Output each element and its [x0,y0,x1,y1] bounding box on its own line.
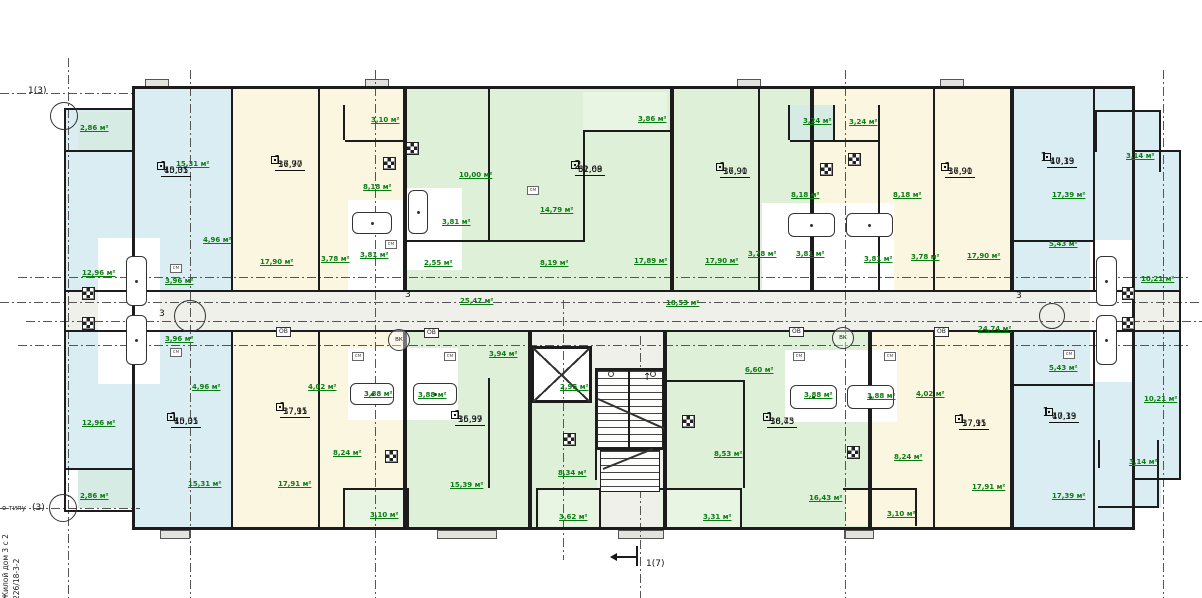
wall-segment [66,290,132,292]
plumbing-riser-tag: ВК [832,327,854,349]
axis-label: 3 [1016,291,1022,301]
stove-icon [682,415,695,428]
wall-segment [663,330,667,530]
room-area-label: 3,10 м² [887,510,916,518]
heating-riser-tag: ОВ [276,327,291,337]
room-area-label: 8,19 м² [540,259,569,267]
axis-circle [174,300,206,332]
title-block-line2: 226/18-3-2 [12,468,21,598]
room-zone [160,530,190,539]
wall-segment [1010,330,1014,530]
heating-riser-tag: ОВ [789,327,804,337]
wall-segment [658,488,742,490]
bathtub-icon [352,212,392,234]
bathtub-icon [126,315,147,365]
room-area-label: 18,53 м² [666,299,699,307]
wall-segment [1179,150,1181,480]
axis-line [18,277,1190,278]
apartment-areas: 17,3940,13 [1046,156,1048,158]
plumbing-riser-tag: ВК [388,329,410,351]
room-area-label: 2,55 м² [424,259,453,267]
total-area: 61,09 [575,165,605,175]
room-area-label: 8,18 м² [363,183,392,191]
room-area-label: 15,39 м² [450,481,483,489]
wall-segment [132,86,1135,89]
apartment-areas: 17,9137,15 [279,406,281,408]
wall-segment [868,330,872,530]
room-area-label: 4,02 м² [308,383,337,391]
room-area-label: 3,81 м² [796,250,825,258]
stove-icon [848,153,861,166]
room-zone [1095,110,1161,172]
wall-segment [599,488,601,528]
room-area-label: 3,88 м² [364,390,393,398]
room-area-label: 8,18 м² [893,191,922,199]
room-area-label: 3,81 м² [864,255,893,263]
washer-tag: см [352,352,364,361]
stove-icon [847,446,860,459]
total-area: 40,13 [1049,412,1079,422]
wall-segment [583,130,585,242]
room-zone [660,490,740,528]
room-area-label: 3,14 м² [1126,152,1155,160]
room-area-label: 24,74 м² [978,325,1011,333]
room-area-label: 4,96 м² [203,236,232,244]
room-area-label: 2,86 м² [80,492,109,500]
wall-segment [345,488,409,490]
wall-segment [403,86,407,290]
apartment-areas: 17,9036,91 [944,166,946,168]
room-area-label: 3,10 м² [370,511,399,519]
stove-icon [385,450,398,463]
total-area: 36,77 [275,160,305,170]
wall-segment [743,382,745,488]
wall-segment [231,332,233,530]
heating-riser-tag: ОВ [934,327,949,337]
stove-icon [82,287,95,300]
wall-segment [933,332,935,530]
total-area: 38,75 [767,417,797,427]
stove-icon [82,317,95,330]
washer-tag: см [385,240,397,249]
apartment-areas: 17,9036,77 [274,159,276,161]
room-zone [844,530,874,539]
bathtub-icon [1096,315,1117,365]
title-block-line1: Жилой дом 3 с 2 [1,468,10,598]
room-area-label: 3,94 м² [489,350,518,358]
wall-segment [1010,86,1014,290]
room-zone [1135,292,1181,332]
bathtub-icon [126,256,147,306]
apartment-areas: 17,9137,15 [958,418,960,420]
washer-tag: см [170,348,182,357]
room-zone [78,470,132,508]
room-area-label: 17,91 м² [278,480,311,488]
room-area-label: 2,95 м² [560,383,589,391]
room-area-label: 8,24 м² [333,449,362,457]
room-area-label: 6,60 м² [745,366,774,374]
wall-segment [915,488,917,526]
wall-segment [66,330,132,332]
axis-circle [50,102,78,130]
wall-segment [318,88,320,290]
wall-segment [488,378,490,488]
wall-segment [66,468,132,470]
wall-segment [1135,330,1181,332]
wall-segment [758,88,760,290]
wall-segment [132,86,135,530]
wall-segment [833,105,835,140]
wall-segment [843,488,917,490]
room-area-label: 8,34 м² [558,469,587,477]
room-area-label: 16,43 м² [809,494,842,502]
stair-post-icon [608,371,614,377]
wall-segment [1093,332,1095,530]
axis-circle [49,494,77,522]
room-area-label: 17,90 м² [705,257,738,265]
wall-segment [665,380,745,382]
total-area: 37,15 [959,419,989,429]
total-area: 40,05 [171,417,201,427]
room-area-label: 17,39 м² [1052,191,1085,199]
elevator-shaft-icon [533,348,590,402]
room-zone [583,92,667,130]
apartment-areas: 17,9036,91 [719,166,721,168]
room-zone [508,60,666,86]
washer-tag: см [884,352,896,361]
axis-label: 1(3) [28,86,46,96]
room-zone [618,530,664,539]
total-area: 36,91 [945,167,975,177]
room-area-label: 3,88 м² [867,392,896,400]
room-area-label: 8,24 м² [894,453,923,461]
wall-segment [1012,384,1095,386]
bathtub-icon [846,213,893,237]
room-area-label: 3,14 м² [1129,458,1158,466]
axis-label: 1(7) [646,559,664,569]
washer-tag: см [170,264,182,273]
stairs-divider [628,370,630,448]
room-area-label: 17,39 м² [1052,492,1085,500]
stove-icon [820,163,833,176]
wall-segment [343,105,345,140]
total-area: 36,37 [455,415,485,425]
room-area-label: 5,43 м² [1049,240,1078,248]
room-area-label: 17,89 м² [634,257,667,265]
room-area-label: 14,79 м² [540,206,573,214]
wall-segment [407,488,409,528]
wall-segment [790,140,880,142]
room-area-label: 3,78 м² [911,253,940,261]
wall-segment [405,240,585,242]
heating-riser-tag: ОВ [424,328,439,338]
room-area-label: 8,18 м² [791,191,820,199]
wall-segment [1095,110,1097,152]
wall-segment [64,108,66,512]
room-area-label: 3,96 м² [165,335,194,343]
room-area-label: 3,24 м² [803,117,832,125]
wall-segment [318,332,320,530]
room-area-label: 12,96 м² [82,269,115,277]
room-area-label: 3,81 м² [360,251,389,259]
stove-icon [1122,317,1135,330]
wall-segment [1098,506,1159,508]
wall-segment [636,546,638,566]
room-zone [437,530,497,539]
total-area: 37,15 [280,407,310,417]
wall-segment [231,88,233,290]
apartment-areas: 32,6861,09 [574,164,576,166]
apartment-areas: 15,9936,37 [454,414,456,416]
room-area-label: 10,21 м² [1144,395,1177,403]
room-area-label: 5,43 м² [1049,364,1078,372]
bathtub-icon [408,190,428,234]
room-area-label: 4,96 м² [192,383,221,391]
room-area-label: 3,62 м² [559,513,588,521]
room-area-label: 3,88 м² [804,391,833,399]
washer-tag: см [1063,350,1075,359]
apartment-areas: 15,3140,05 [170,416,172,418]
wall-segment [670,86,674,290]
total-area: 36,91 [720,167,750,177]
room-area-label: 10,00 м² [459,171,492,179]
wall-segment [612,556,638,558]
stairs-up-arrow-icon: ↑ [643,372,651,383]
wall-segment [583,130,672,132]
room-area-label: 17,91 м² [972,483,1005,491]
room-area-label: 17,90 м² [967,252,1000,260]
room-area-label: 15,31 м² [188,480,221,488]
washer-tag: см [444,352,456,361]
room-zone [845,490,917,526]
room-area-label: 3,88 м² [418,391,447,399]
apartment-areas: 17,3940,13 [1048,411,1050,413]
wall-segment [1098,440,1100,468]
wall-segment [740,488,742,528]
stove-icon [563,433,576,446]
total-area: 40,13 [1047,157,1077,167]
wall-segment [345,140,407,142]
room-area-label: 3,24 м² [849,118,878,126]
washer-tag: см [527,186,539,195]
room-area-label: 2,86 м² [80,124,109,132]
total-area: 40,05 [161,166,191,176]
room-area-label: 3,81 м² [442,218,471,226]
wall-segment [343,488,345,528]
apartment-areas: 16,4338,75 [766,416,768,418]
room-area-label: 3,10 м² [371,116,400,124]
wall-segment [788,105,790,140]
wall-segment [1093,88,1095,290]
room-area-label: 3,96 м² [165,277,194,285]
room-area-label: 12,96 м² [82,419,115,427]
wall-segment [132,527,1135,530]
stove-icon [383,157,396,170]
room-area-label: 17,90 м² [260,258,293,266]
room-area-label: 3,78 м² [748,250,777,258]
axis-circle [1039,303,1065,329]
wall-segment [1157,440,1159,508]
wall-segment [538,488,599,490]
wall-segment [488,88,490,242]
bathtub-icon [1096,256,1117,306]
apartment-areas: 15,3140,05 [160,165,162,167]
stove-icon [1122,287,1135,300]
wall-segment [132,290,1135,292]
room-area-label: 3,31 м² [703,513,732,521]
bathtub-icon [788,213,835,237]
room-zone [1098,440,1161,508]
axis-label: 3 [159,309,165,319]
room-area-label: 8,53 м² [714,450,743,458]
stove-icon [406,142,419,155]
axis-line [18,345,1190,346]
stairs-upper [597,370,663,448]
wall-segment [536,488,538,528]
wall-segment [1135,290,1181,292]
room-area-label: 3,78 м² [321,255,350,263]
axis-label: (3) [32,503,45,513]
floor-plan: Лифт Q=630кг (АР-1н) ЗТР 1.680 Жилой дом… [0,0,1202,598]
axis-label: 3 [405,290,411,300]
wall-segment [1159,110,1161,172]
wall-segment [66,150,132,152]
wall-segment [1095,110,1161,112]
room-area-label: 10,21 м² [1141,275,1174,283]
axis-line [190,70,191,598]
room-area-label: 4,02 м² [916,390,945,398]
washer-tag: см [793,352,805,361]
room-zone [345,490,407,526]
room-area-label: 25,47 м² [460,297,493,305]
room-area-label: 3,86 м² [638,115,667,123]
axis-line [563,300,564,560]
